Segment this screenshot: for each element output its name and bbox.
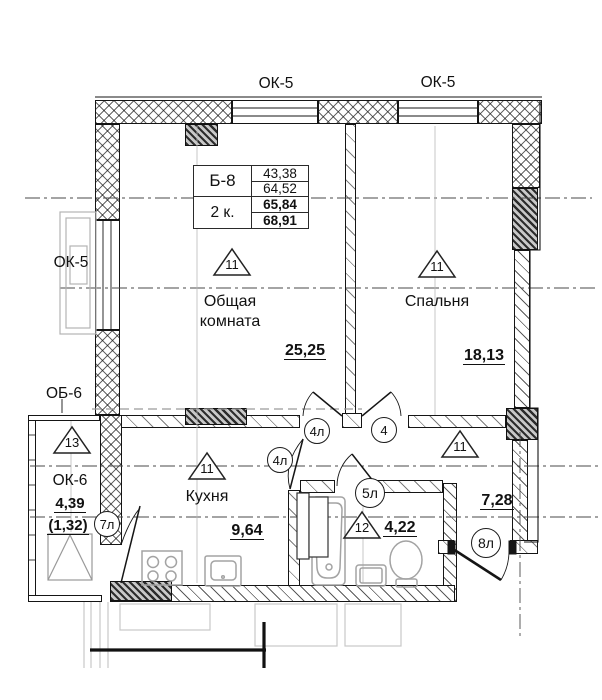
living-room-area: 25,25 [260,342,350,360]
door-tag-bedroom: 4 [371,417,397,443]
outer-contour-right [524,100,540,542]
bedroom-name: Спальня [377,293,497,311]
window-label-left: ОК-5 [31,254,111,272]
total-area: 65,84 [252,197,308,213]
room-marker-living: 11 [213,248,251,276]
balcony-door-label: ОБ-6 [24,385,104,403]
door-tag-entrance: 8л [471,528,501,558]
loggia-window-symbol [48,534,92,580]
balcony-door-symbol [60,212,96,334]
bath-sink-icon [356,565,386,586]
door-tag-kitchen: 4л [267,447,293,473]
window-label-top-left: ОК-5 [236,75,316,93]
kitchen-name: Кухня [157,488,257,506]
door-tag-bathroom: 5л [355,478,385,508]
loggia-area: 4,39 [25,495,115,513]
window-label-top-right: ОК-5 [398,74,478,92]
living-room-name: Общая комната [160,292,300,332]
neighbour-hints [84,602,401,668]
loggia-window-label: ОК-6 [30,472,110,490]
room-marker-kitchen: 11 [188,452,226,480]
section-cut-lines [90,622,266,668]
floor-plan: ОК-5 ОК-5 ОК-5 ОБ-6 ОК-6 Б-8 43,38 64,52… [0,0,602,700]
rooms-count: 2 к. [194,197,252,228]
total-area-balcony: 68,91 [252,213,308,229]
room-marker-hallway: 11 [441,430,479,458]
bedroom-area: 18,13 [439,347,529,365]
duct-shafts [297,493,328,559]
window-glazing [62,97,542,413]
room-marker-loggia: 13 [53,426,91,454]
hallway-area: 7,28 [452,492,542,510]
living-area-lower: 64,52 [252,182,308,198]
door-tag-living: 4л [304,418,330,444]
kitchen-area: 9,64 [202,522,292,540]
flat-type: Б-8 [194,166,252,197]
room-marker-bedroom: 11 [418,250,456,278]
apartment-info-table: Б-8 43,38 64,52 2 к. 65,84 68,91 [193,165,309,229]
kitchen-sink-icon [205,556,241,586]
living-area-upper: 43,38 [252,166,308,182]
toilet-icon [390,541,422,587]
door-tag-loggia: 7л [94,511,120,537]
bathroom-area: 4,22 [355,519,445,537]
stove-icon [142,551,182,585]
